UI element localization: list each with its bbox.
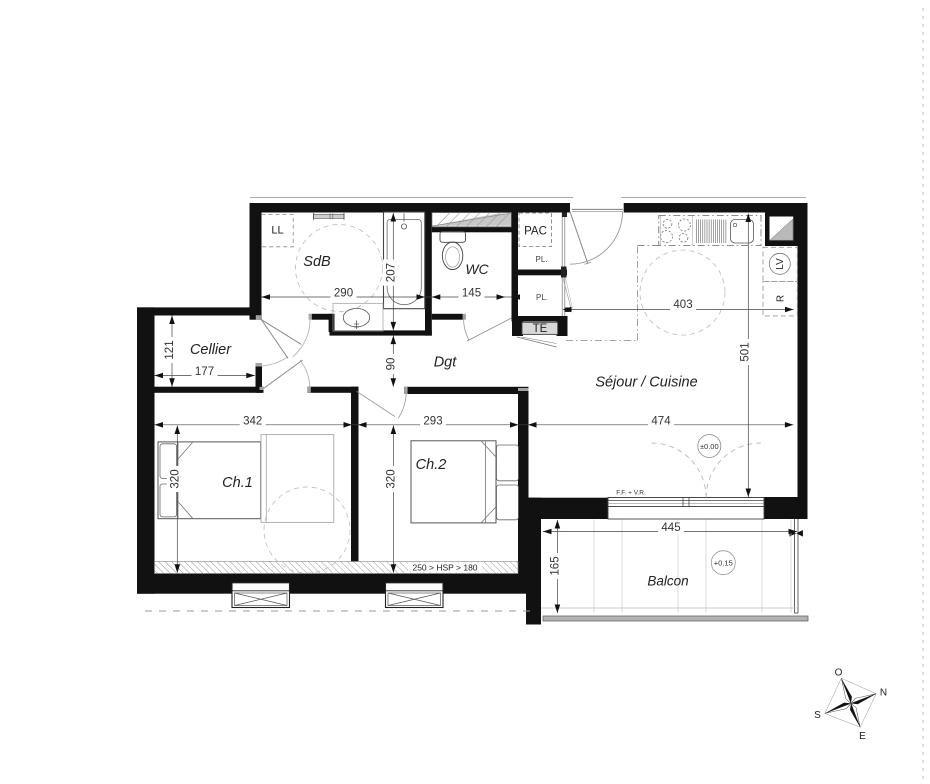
svg-text:177: 177 <box>195 366 214 378</box>
svg-text:O: O <box>835 668 843 679</box>
svg-text:SdB: SdB <box>303 254 331 270</box>
svg-text:320: 320 <box>385 469 397 488</box>
svg-text:403: 403 <box>673 299 692 311</box>
svg-text:Ch.1: Ch.1 <box>222 475 253 491</box>
svg-text:Cellier: Cellier <box>190 342 232 358</box>
svg-text:121: 121 <box>164 340 176 359</box>
svg-text:PL.: PL. <box>536 293 548 302</box>
svg-text:PAC: PAC <box>524 226 547 238</box>
svg-text:250 > HSP > 180: 250 > HSP > 180 <box>412 562 477 572</box>
svg-text:501: 501 <box>740 342 752 361</box>
svg-text:293: 293 <box>423 415 442 427</box>
svg-text:S: S <box>814 710 821 721</box>
svg-text:165: 165 <box>549 556 561 575</box>
svg-text:Séjour / Cuisine: Séjour / Cuisine <box>595 375 697 391</box>
svg-text:207: 207 <box>385 263 397 282</box>
svg-text:E: E <box>859 731 866 742</box>
svg-text:145: 145 <box>462 288 481 300</box>
svg-text:Balcon: Balcon <box>647 574 688 589</box>
svg-text:Dgt: Dgt <box>434 355 458 371</box>
svg-text:WC: WC <box>465 261 489 277</box>
svg-text:R: R <box>776 295 787 302</box>
svg-text:Ch.2: Ch.2 <box>416 457 447 473</box>
svg-text:PL.: PL. <box>535 255 547 264</box>
svg-text:90: 90 <box>385 358 397 371</box>
svg-text:F.F. + V.R.: F.F. + V.R. <box>616 490 646 497</box>
svg-text:LL: LL <box>271 225 283 237</box>
svg-text:+0.15: +0.15 <box>714 559 733 568</box>
svg-text:320: 320 <box>169 469 181 488</box>
svg-text:290: 290 <box>334 288 353 300</box>
svg-text:342: 342 <box>243 415 262 427</box>
svg-text:N: N <box>880 688 887 699</box>
svg-text:445: 445 <box>661 522 680 534</box>
svg-text:±0.00: ±0.00 <box>700 442 719 451</box>
svg-text:LV: LV <box>775 258 786 270</box>
svg-text:TE: TE <box>533 323 548 335</box>
svg-text:474: 474 <box>651 415 671 427</box>
